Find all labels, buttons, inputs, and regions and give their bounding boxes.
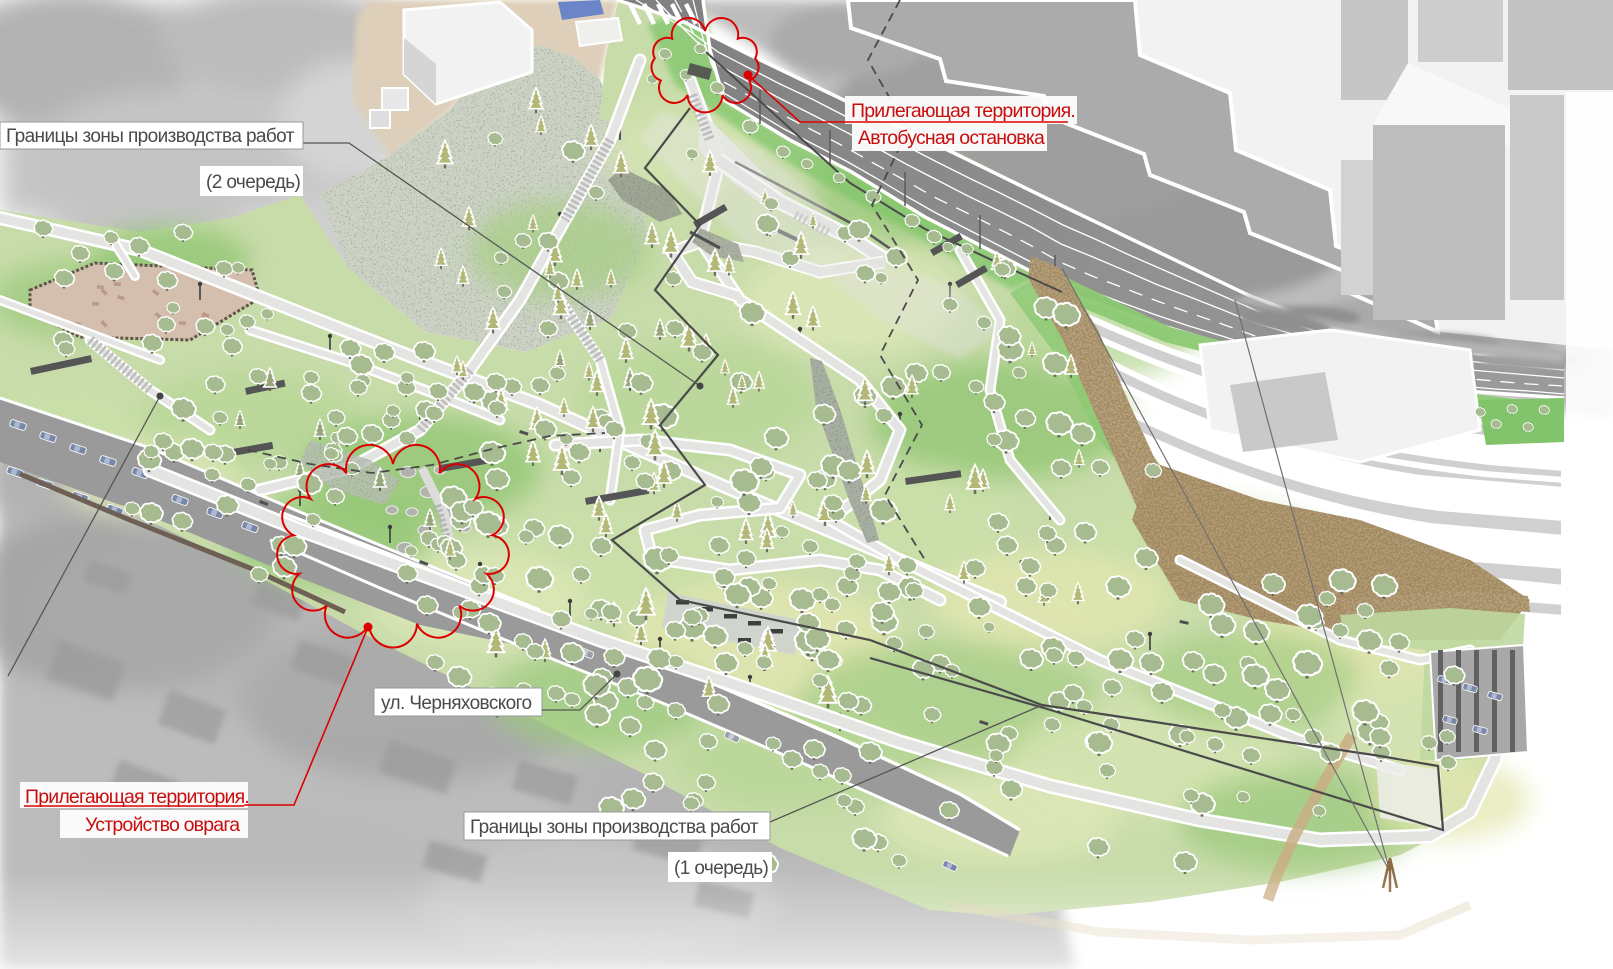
svg-text:Границы зоны производства раб: Границы зоны производства работ [470, 817, 759, 838]
svg-text:Устройство оврага: Устройство оврага [85, 814, 240, 836]
svg-text:Автобусная остановка: Автобусная остановка [858, 127, 1045, 149]
svg-text:Прилегающая территория.: Прилегающая территория. [851, 100, 1075, 122]
svg-text:ул. Черняховского: ул. Черняховского [381, 693, 532, 714]
svg-text:(2 очередь): (2 очередь) [206, 172, 300, 193]
svg-text:Границы зоны производства раб: Границы зоны производства работ [6, 126, 295, 147]
svg-text:Прилегающая территория.: Прилегающая территория. [25, 786, 249, 808]
